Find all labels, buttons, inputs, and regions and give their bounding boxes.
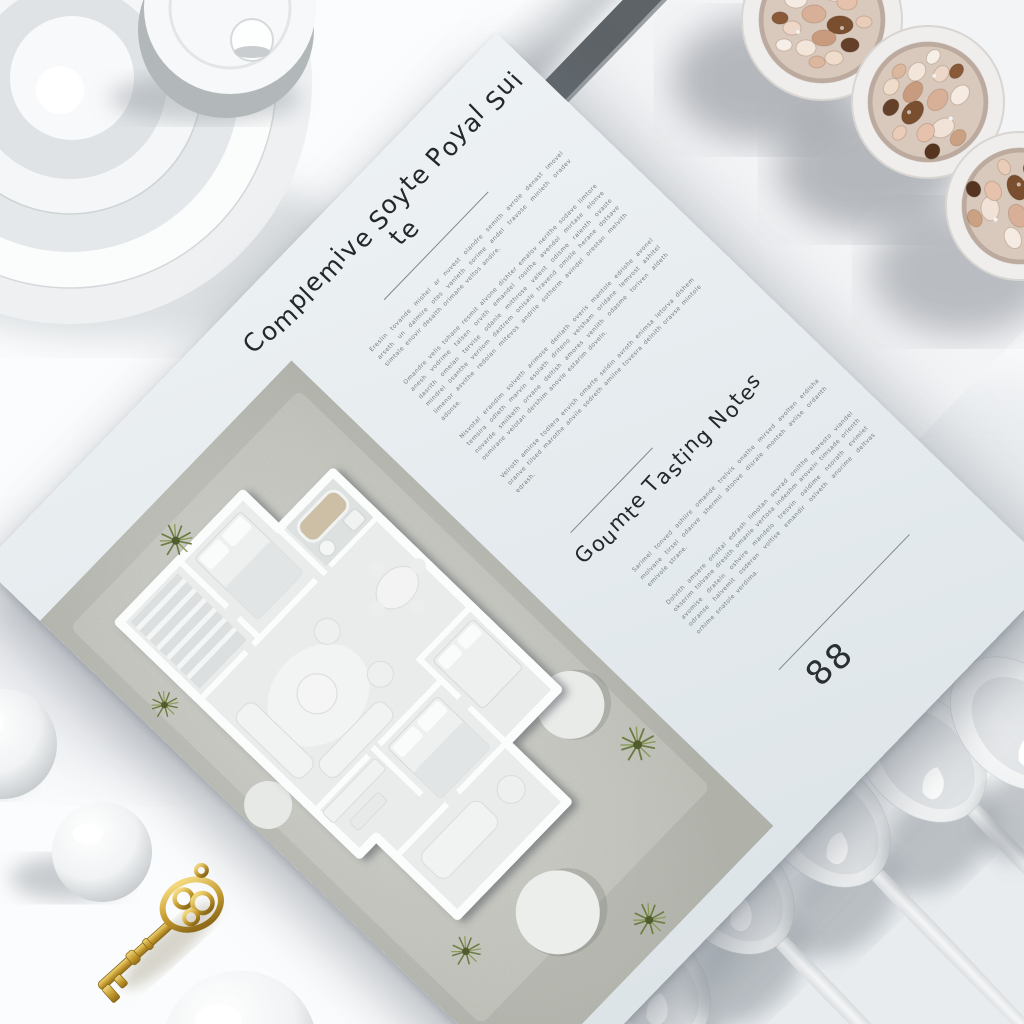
tabletop-scene: { "page": { "title": "Complemive Soyte P… — [0, 0, 1024, 1024]
page-number: 88 — [800, 634, 862, 696]
tasting-text-column: Sarimel tonved ashlire omande trelvis on… — [630, 377, 897, 648]
